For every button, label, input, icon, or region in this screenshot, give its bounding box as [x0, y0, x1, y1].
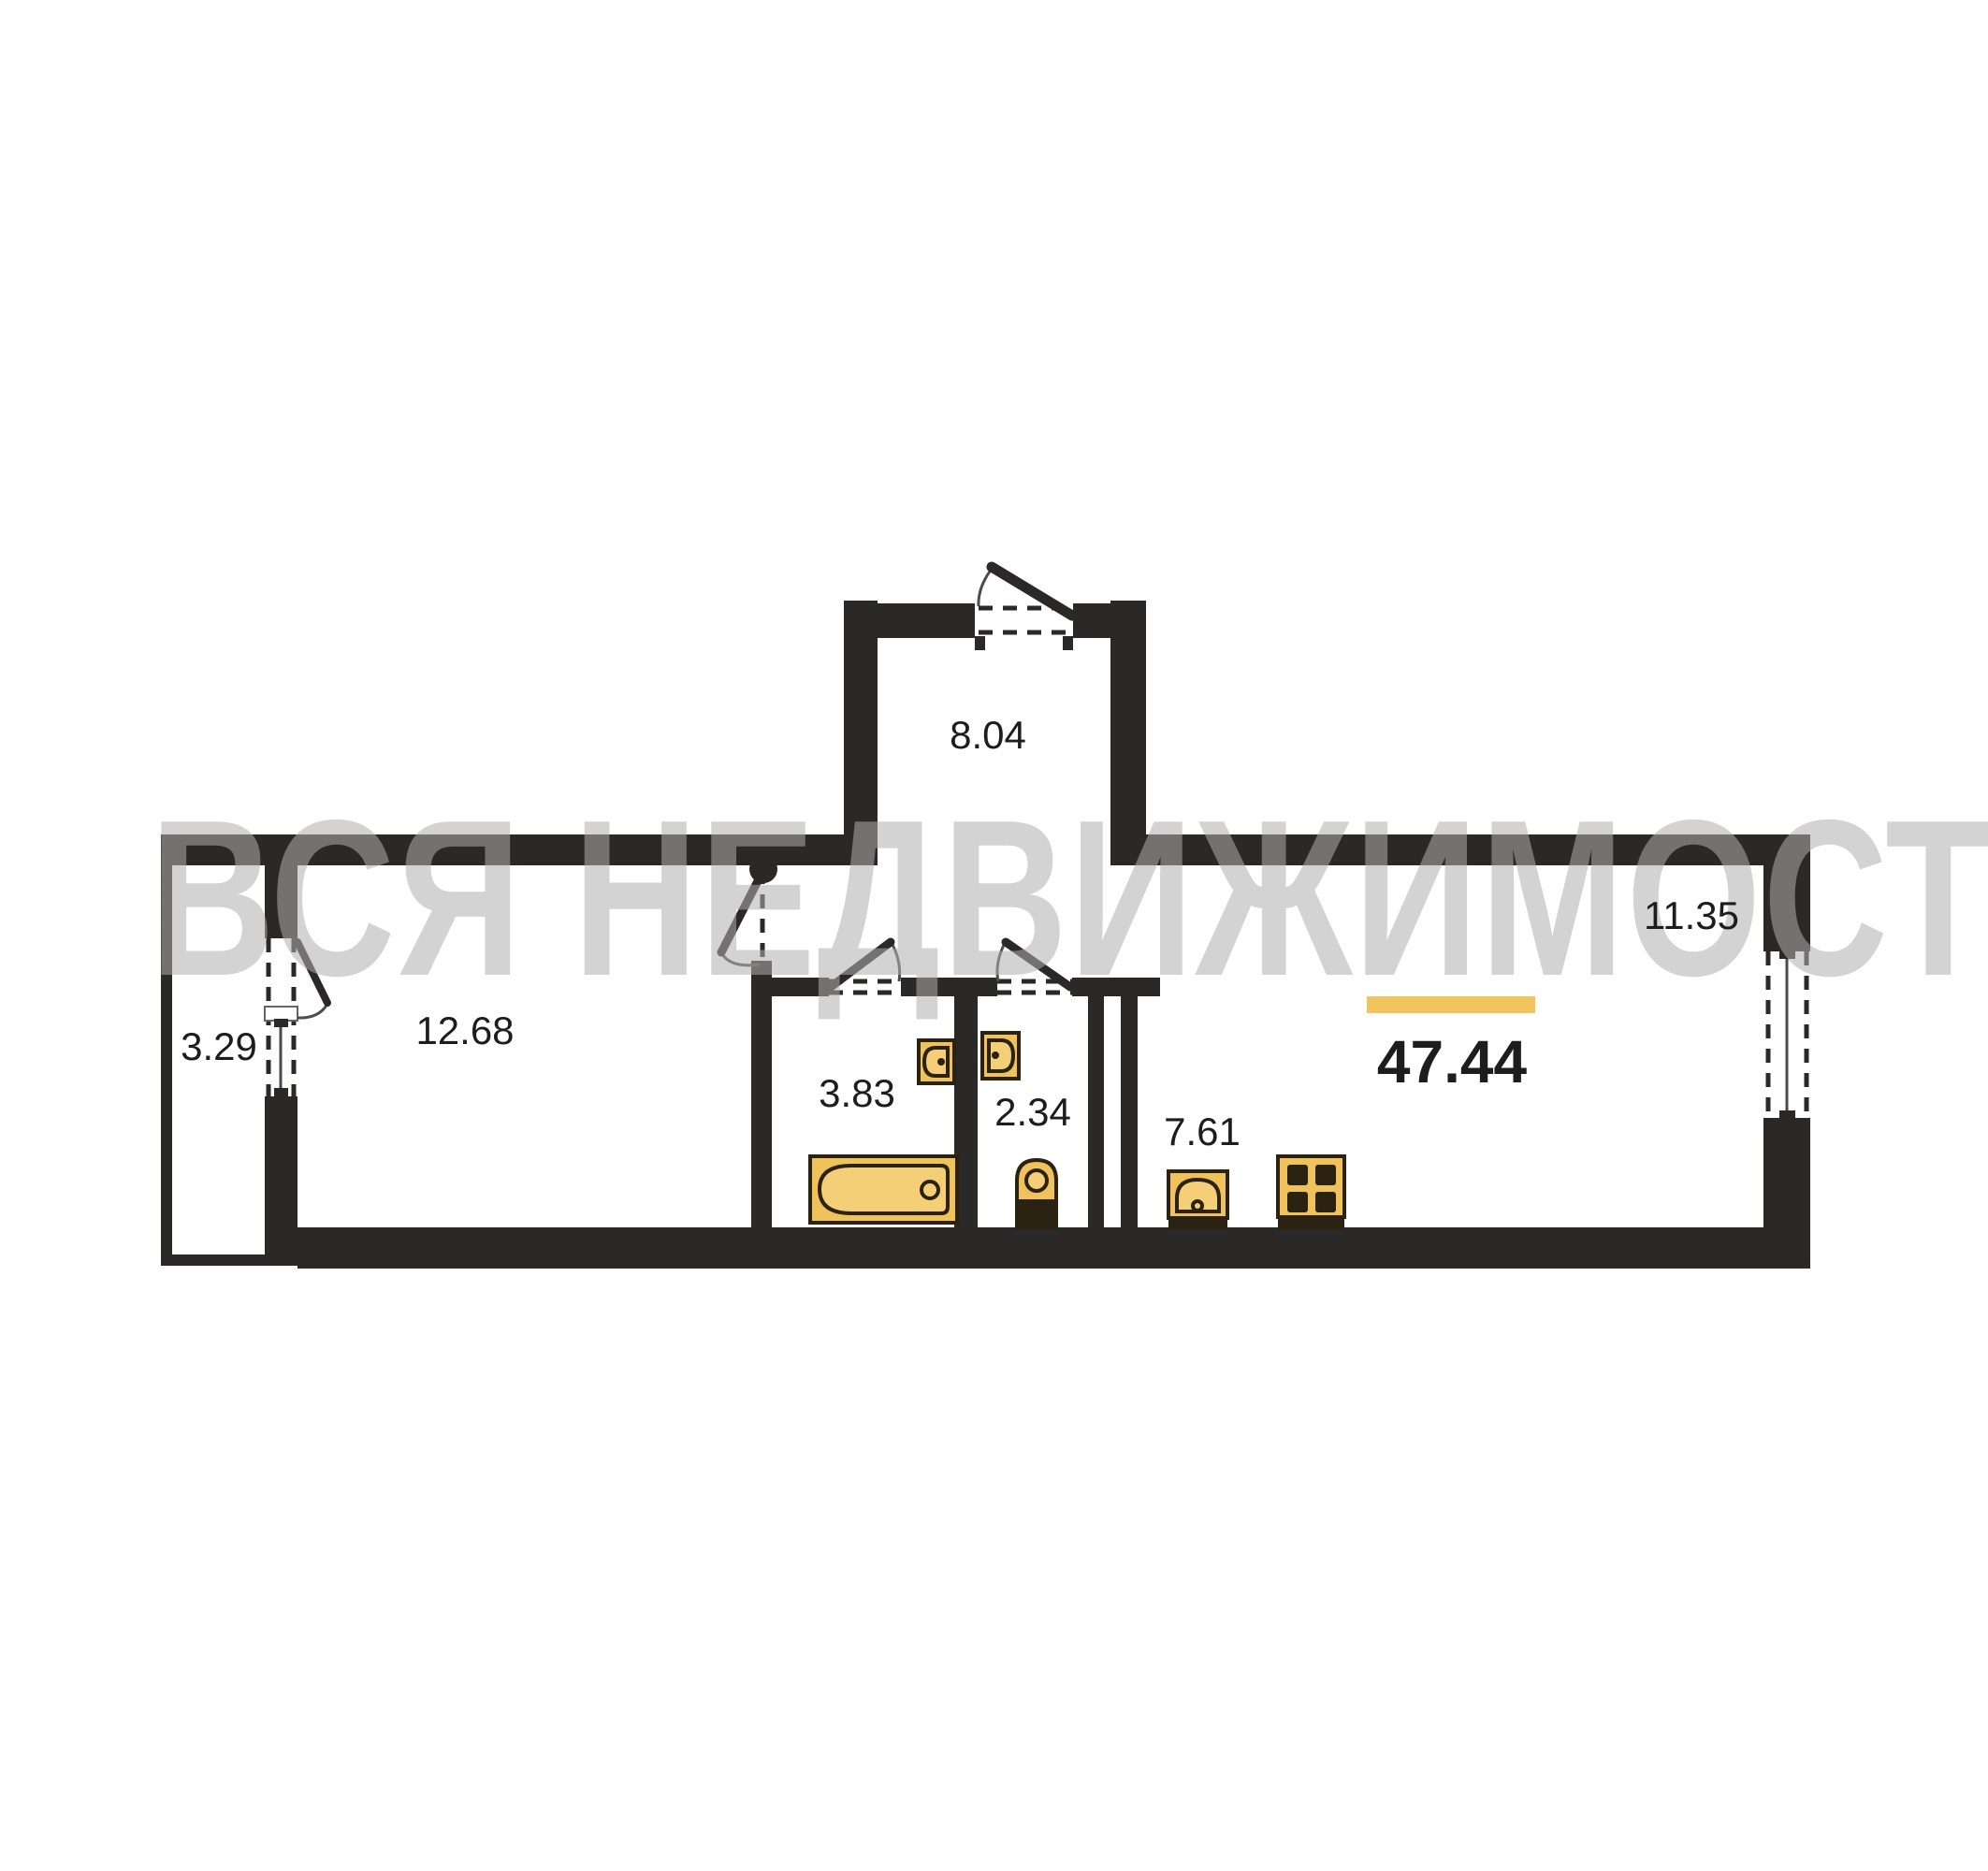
wall-bottom — [297, 1227, 1810, 1269]
room-label-balcony: 3.29 — [181, 1024, 257, 1068]
sink-icon — [919, 1040, 954, 1083]
total-area-label: 47.44 — [1377, 1028, 1528, 1095]
room-label-wc: 2.34 — [994, 1090, 1071, 1134]
room-label-bathroom: 3.83 — [819, 1071, 895, 1115]
toilet-icon — [1015, 1160, 1058, 1229]
bathtub-icon — [810, 1156, 957, 1223]
sink-icon — [982, 1033, 1019, 1079]
wall-entry-top-left — [844, 603, 975, 638]
door-icon — [979, 567, 1072, 632]
room-label-living-zone: 11.35 — [1644, 893, 1739, 937]
room-label-room: 12.68 — [415, 1008, 514, 1052]
stove-icon — [1278, 1156, 1344, 1229]
room-label-entry-hall: 8.04 — [950, 713, 1026, 757]
total-area-accent-bar — [1367, 996, 1535, 1013]
kitchen-sink-icon — [1168, 1171, 1227, 1229]
fixtures — [810, 1033, 1344, 1229]
room-label-kitchen: 7.61 — [1164, 1110, 1241, 1153]
entry-jamb-right — [1063, 636, 1073, 650]
wall-entry-top-right — [1073, 603, 1146, 638]
wall-balcony-partition-lower — [265, 1096, 297, 1255]
entry-jamb-left — [975, 636, 985, 650]
floor-plan: ВСЯ НЕДВИЖИМОСТЬ 8.04 12.68 3.29 3.83 2.… — [0, 0, 1988, 1871]
wall-balcony-bottom — [161, 1255, 297, 1266]
